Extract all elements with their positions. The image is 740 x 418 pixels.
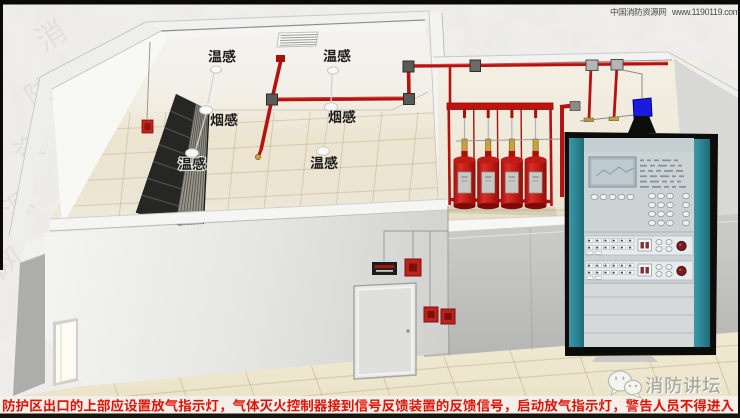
svg-text:www.1190119.com: www.1190119.com bbox=[671, 7, 740, 17]
